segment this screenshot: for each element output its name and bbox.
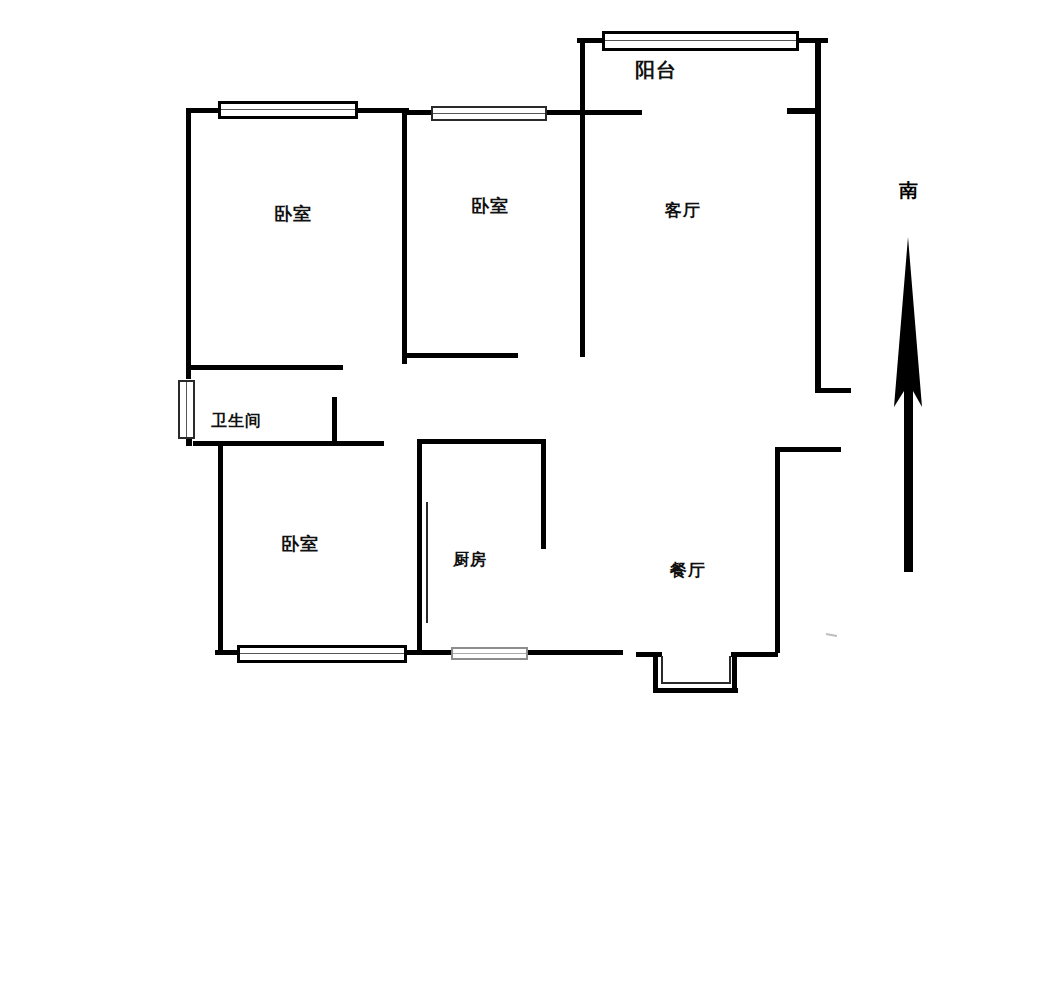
kitchen-door-leaf-line	[426, 502, 428, 623]
wall-kitchen-left	[417, 439, 422, 651]
south-direction-arrow-icon	[878, 228, 942, 580]
wall-west-outer	[186, 108, 191, 379]
window-bedroom-nw-north	[218, 101, 358, 119]
window-pane	[221, 109, 355, 110]
window-pane	[433, 113, 545, 114]
wall-dining-top-stub	[775, 447, 841, 452]
floor-plan-canvas: 阳台 卧室 卧室 客厅 卫生间 卧室 厨房 餐厅 南	[0, 0, 1061, 1000]
entry-alcove-inner-right	[729, 656, 731, 684]
wall-entry-stub-left	[636, 652, 662, 657]
wall-balcony-top-right	[795, 38, 828, 43]
wall-bedroom-living-divider	[580, 40, 585, 357]
wall-bedroom-sw-left	[218, 443, 223, 655]
wall-bedroom-n-top-right	[543, 110, 642, 115]
window-bathroom-west	[178, 380, 195, 439]
wall-bedroom-n-bottom	[403, 353, 518, 358]
window-balcony-north	[602, 31, 799, 51]
wall-bedroom-nw-top-right	[353, 108, 409, 113]
window-pane	[453, 653, 526, 654]
room-label-living: 客厅	[665, 202, 701, 219]
wall-entry-alcove-bottom	[653, 688, 738, 693]
wall-bedroom-divider-west	[402, 110, 407, 364]
room-label-bedroom-sw: 卧室	[281, 535, 319, 553]
wall-kitchen-right	[541, 439, 546, 549]
window-kitchen-south	[451, 647, 528, 660]
room-label-bedroom-nw: 卧室	[274, 205, 312, 223]
wall-kitchen-top	[417, 439, 546, 444]
wall-entry-stub-right	[731, 652, 778, 657]
wall-bathroom-right	[332, 397, 337, 446]
window-pane	[240, 653, 404, 654]
room-label-bathroom: 卫生间	[211, 413, 262, 429]
window-pane	[186, 382, 187, 437]
room-label-kitchen: 厨房	[453, 552, 487, 568]
wall-bathroom-top	[188, 365, 343, 370]
wall-kitchen-bottom-right	[526, 650, 623, 655]
entry-alcove-inner-left	[661, 656, 663, 684]
wall-bottom-mid	[404, 650, 453, 655]
window-bedroom-n-north	[431, 106, 547, 121]
wall-entry-alcove-right	[732, 652, 737, 693]
wall-entry-alcove-left	[653, 652, 658, 693]
wall-east-outer	[815, 41, 821, 393]
window-bedroom-sw-south	[237, 645, 407, 663]
room-label-bedroom-n: 卧室	[471, 197, 509, 215]
window-pane	[605, 40, 796, 41]
room-label-balcony: 阳台	[635, 60, 677, 80]
wall-dining-right	[775, 447, 780, 653]
compass-south-label: 南	[899, 181, 918, 200]
stray-mark	[826, 633, 837, 637]
room-label-dining: 餐厅	[670, 562, 706, 579]
entry-alcove-inner-bottom	[661, 682, 731, 684]
